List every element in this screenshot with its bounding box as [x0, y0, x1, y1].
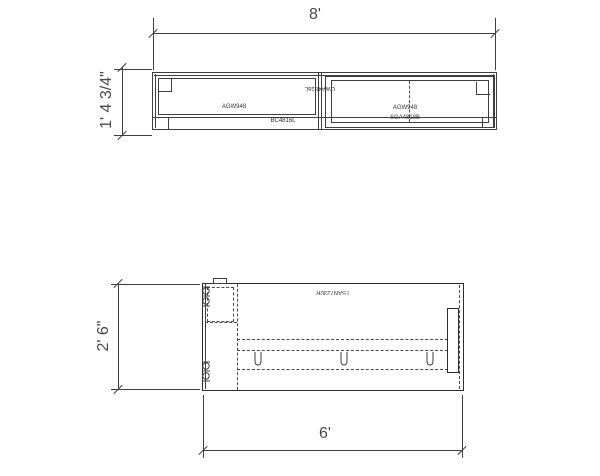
door-edge-tab [213, 278, 227, 284]
extension-line [114, 69, 152, 70]
extension-line [462, 395, 463, 458]
dimension-text-8ft: 8' [280, 6, 350, 24]
support-clip-icon [339, 352, 349, 366]
extension-line [495, 18, 496, 70]
dimension-text-2ft-6in: 2' 6" [95, 296, 111, 376]
hidden-line [237, 369, 448, 370]
extension-line [153, 18, 154, 70]
support-clip-icon [425, 352, 435, 366]
dimension-text-6ft: 6' [290, 425, 360, 443]
part-label-right-upper: AGW948 [375, 105, 435, 112]
rail-divider-line [168, 117, 169, 129]
bottom-rail-line [152, 117, 497, 118]
desk-outline [202, 283, 464, 391]
dimension-line [118, 283, 119, 389]
mullion-line [318, 72, 319, 130]
part-label-left-lower: BC4816L [253, 118, 313, 125]
part-label-desk: TSAN7230R [298, 288, 368, 295]
extension-line [111, 389, 200, 390]
pedestal-dashed-line [237, 284, 238, 390]
hidden-line [237, 350, 448, 351]
extension-line [114, 135, 152, 136]
mullion-line [321, 72, 322, 130]
corner-bracket-icon [476, 82, 490, 95]
hidden-line [237, 339, 448, 340]
part-label-center: CWA4816L [290, 84, 350, 91]
pedestal-dashed-line [205, 322, 237, 323]
hutch-left-inner-line [155, 74, 156, 128]
drawing-canvas: 8' 1' 4 3/4" [0, 0, 600, 476]
dimension-line [153, 33, 495, 34]
part-label-left-upper: AGW948 [204, 104, 264, 111]
dimension-line [122, 67, 123, 135]
hinge-icon [201, 286, 214, 308]
part-label-right-lower: SGA4818B [375, 115, 435, 122]
extension-line [203, 395, 204, 458]
rail-divider-line [482, 117, 483, 128]
support-clip-icon [253, 352, 263, 366]
dimension-line [203, 450, 462, 451]
corner-bracket-icon [158, 78, 172, 92]
end-panel [447, 308, 459, 373]
extension-line [111, 284, 200, 285]
hinge-icon [201, 361, 214, 383]
dimension-text-1ft-4-34in: 1' 4 3/4" [98, 60, 114, 140]
end-panel-dashed-line [459, 285, 460, 389]
